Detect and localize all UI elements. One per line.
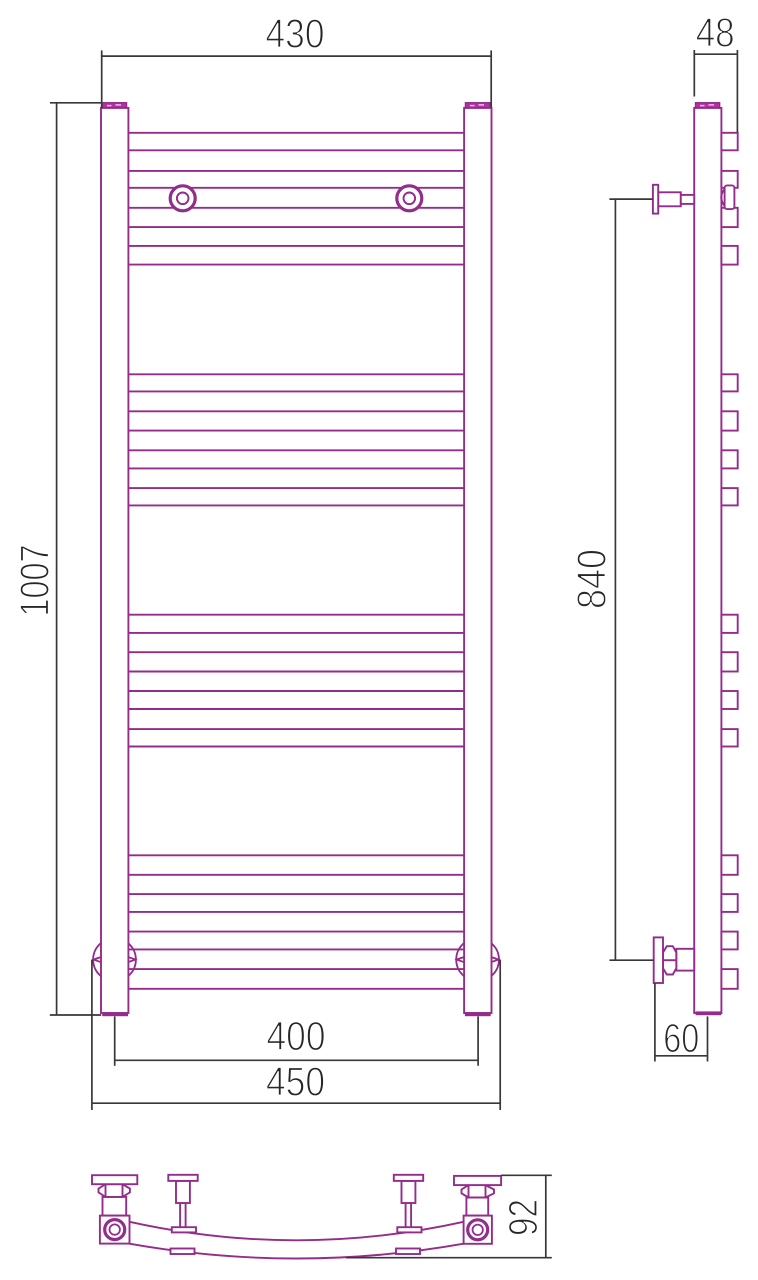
svg-text:840: 840 [569, 549, 615, 609]
svg-text:1007: 1007 [12, 545, 58, 617]
svg-text:400: 400 [267, 1013, 326, 1059]
svg-text:430: 430 [266, 11, 325, 57]
svg-text:48: 48 [696, 10, 735, 56]
svg-text:450: 450 [266, 1058, 325, 1104]
svg-text:92: 92 [500, 1199, 546, 1236]
svg-text:60: 60 [663, 1015, 699, 1061]
